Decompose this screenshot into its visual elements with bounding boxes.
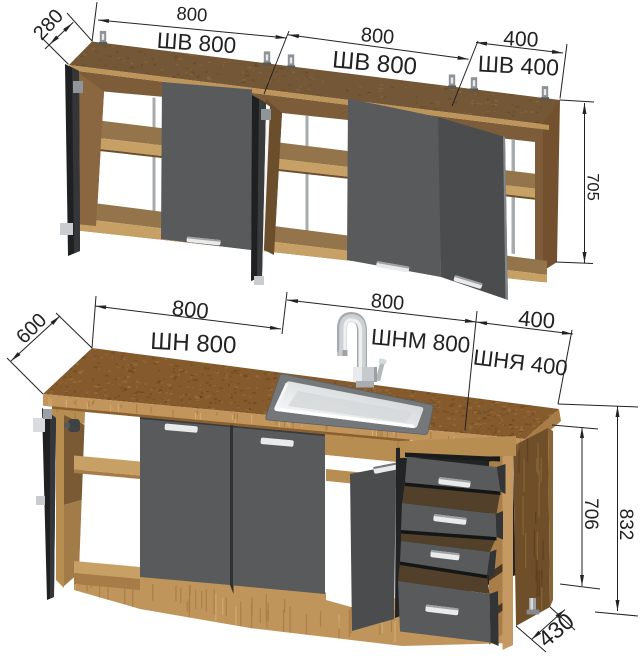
- svg-text:400: 400: [517, 305, 556, 333]
- svg-text:800: 800: [370, 290, 405, 315]
- svg-text:400: 400: [503, 27, 539, 52]
- svg-text:ШВ 400: ШВ 400: [477, 50, 559, 80]
- svg-text:705: 705: [584, 173, 602, 201]
- svg-text:800: 800: [176, 2, 208, 25]
- svg-text:800: 800: [360, 24, 395, 49]
- svg-text:832: 832: [615, 509, 636, 541]
- svg-text:800: 800: [171, 295, 210, 324]
- svg-text:ШН 800: ШН 800: [150, 328, 237, 359]
- svg-text:706: 706: [580, 498, 601, 530]
